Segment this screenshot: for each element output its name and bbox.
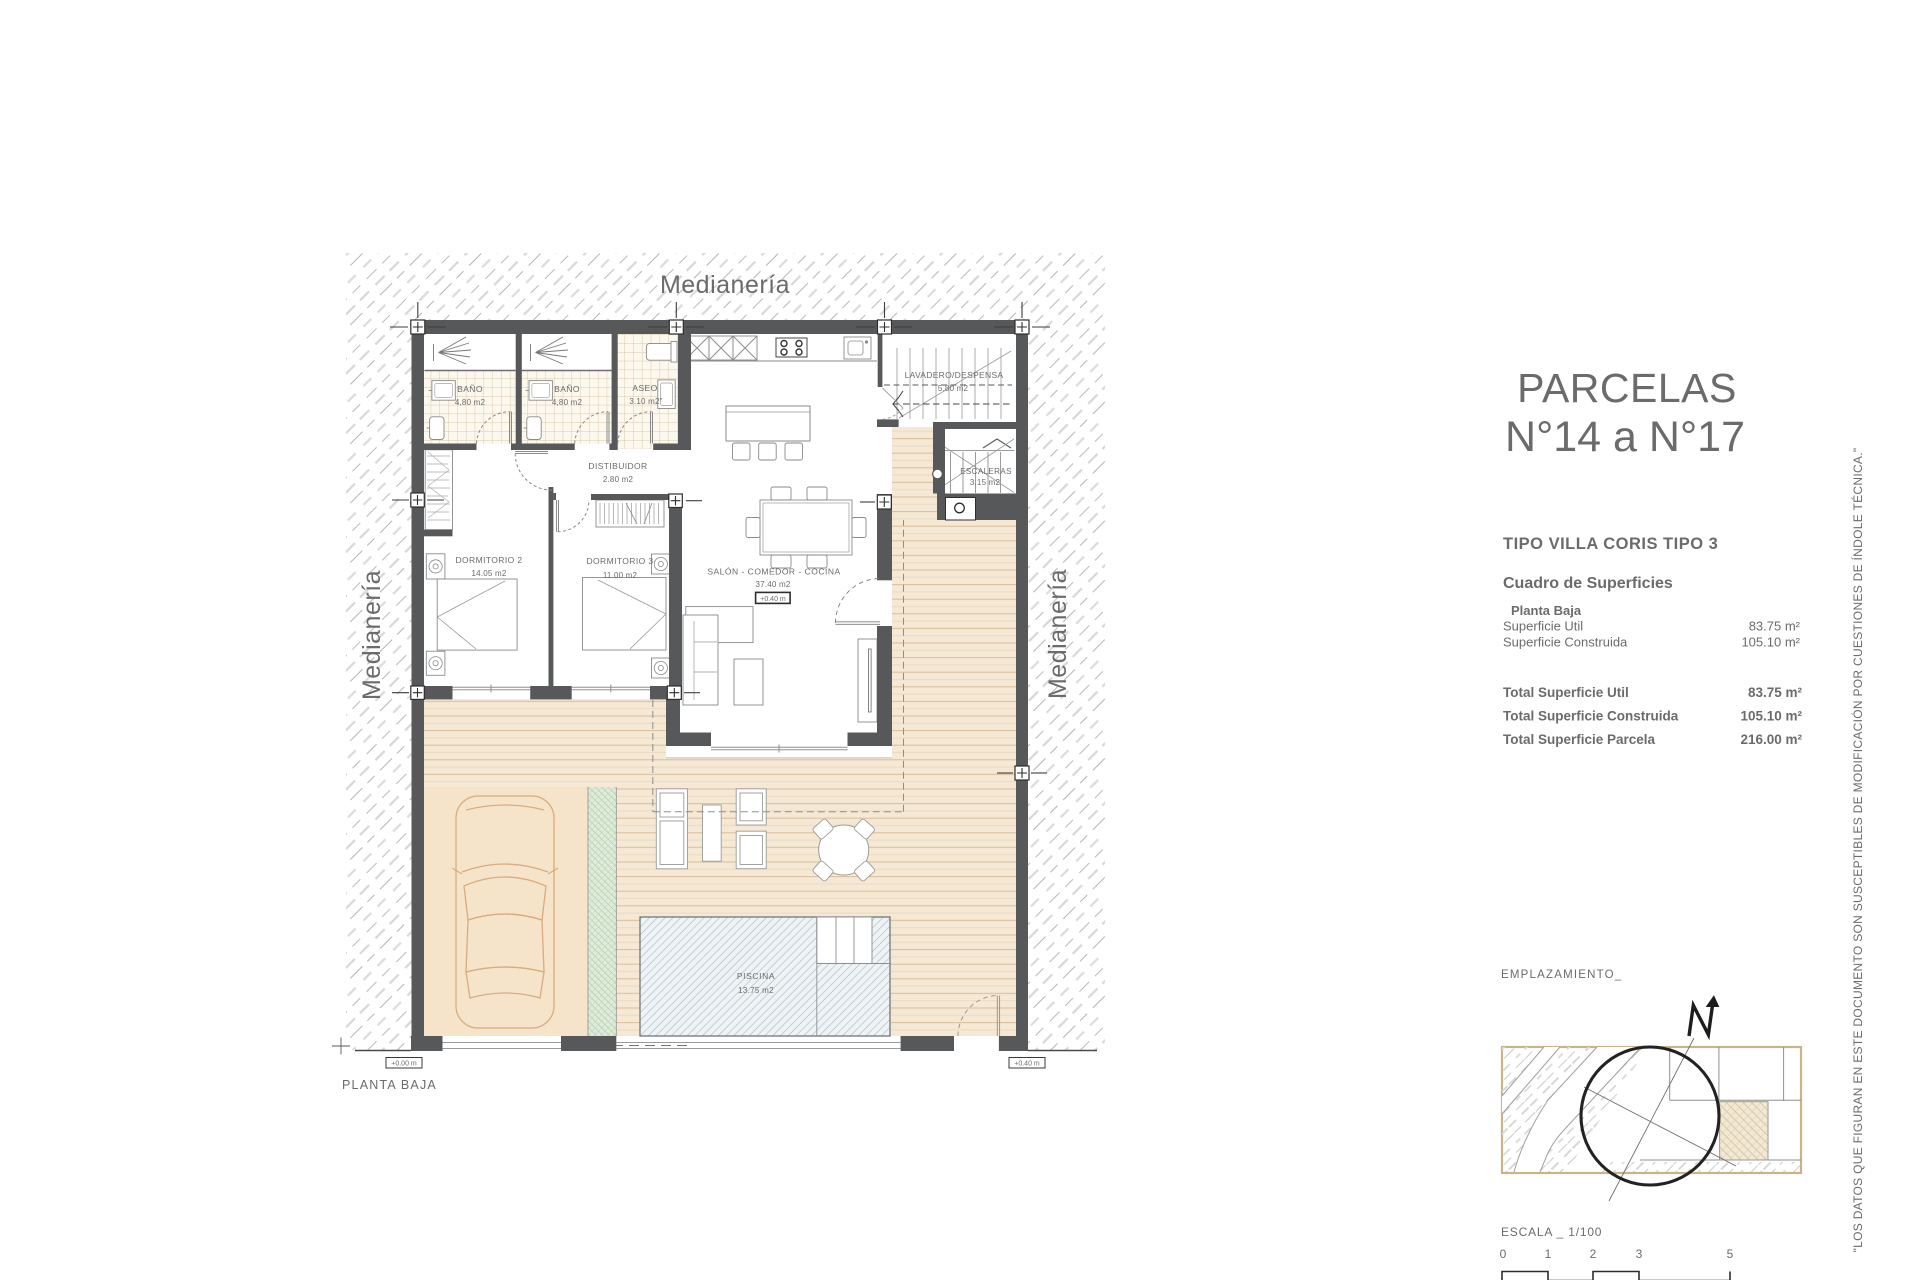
svg-text:105.10 m²: 105.10 m² — [1741, 635, 1800, 650]
svg-text:BAÑO: BAÑO — [554, 384, 580, 394]
svg-text:3.15 m2: 3.15 m2 — [970, 478, 1001, 487]
svg-text:11.00 m2: 11.00 m2 — [603, 571, 638, 580]
svg-text:37.40 m2: 37.40 m2 — [756, 580, 791, 589]
svg-text:1: 1 — [1545, 1247, 1552, 1261]
svg-text:DORMITORIO 2: DORMITORIO 2 — [456, 555, 523, 565]
svg-text:SALÓN - COMEDOR - COCINA: SALÓN - COMEDOR - COCINA — [707, 567, 840, 577]
svg-text:DISTIBUIDOR: DISTIBUIDOR — [588, 461, 647, 471]
svg-text:PLANTA BAJA: PLANTA BAJA — [342, 1078, 437, 1092]
svg-text:"LOS DATOS QUE FIGURAN EN ESTE: "LOS DATOS QUE FIGURAN EN ESTE DOCUMENTO… — [1850, 448, 1865, 1253]
svg-text:4,80 m2: 4,80 m2 — [552, 398, 583, 407]
svg-text:Medianería: Medianería — [358, 570, 386, 700]
svg-text:+0.40 m: +0.40 m — [760, 596, 786, 603]
svg-text:BAÑO: BAÑO — [457, 384, 483, 394]
svg-text:13.75 m2: 13.75 m2 — [738, 986, 774, 995]
svg-text:14.05 m2: 14.05 m2 — [472, 569, 507, 578]
svg-text:5: 5 — [1727, 1247, 1734, 1261]
svg-text:+0.40 m: +0.40 m — [1014, 1061, 1040, 1068]
svg-text:216.00 m²: 216.00 m² — [1740, 732, 1802, 747]
svg-text:ESCALERAS: ESCALERAS — [960, 467, 1012, 476]
svg-text:0: 0 — [1500, 1247, 1507, 1261]
svg-text:Medianería: Medianería — [660, 271, 790, 299]
svg-text:Cuadro de Superficies: Cuadro de Superficies — [1503, 575, 1673, 592]
svg-text:Superficie Util: Superficie Util — [1503, 619, 1583, 634]
svg-text:N°14 a N°17: N°14 a N°17 — [1505, 413, 1745, 461]
svg-text:ESCALA _ 1/100: ESCALA _ 1/100 — [1501, 1225, 1602, 1239]
svg-text:Total Superficie Util: Total Superficie Util — [1503, 685, 1629, 700]
svg-text:Planta Baja: Planta Baja — [1511, 603, 1582, 618]
svg-text:Total Superficie Parcela: Total Superficie Parcela — [1503, 732, 1656, 747]
svg-text:83.75 m²: 83.75 m² — [1749, 619, 1801, 634]
svg-text:Medianería: Medianería — [1044, 569, 1072, 699]
svg-text:ASEO: ASEO — [632, 383, 657, 393]
svg-text:TIPO VILLA CORIS TIPO 3: TIPO VILLA CORIS TIPO 3 — [1503, 535, 1718, 553]
svg-text:PISCINA: PISCINA — [737, 971, 775, 981]
svg-text:3.10 m2": 3.10 m2" — [629, 397, 662, 406]
svg-text:LAVADERO/DESPENSA: LAVADERO/DESPENSA — [905, 370, 1004, 380]
svg-text:5.80 m2: 5.80 m2 — [938, 384, 969, 393]
svg-text:83.75 m²: 83.75 m² — [1748, 685, 1803, 700]
svg-text:3: 3 — [1636, 1247, 1643, 1261]
svg-text:2: 2 — [1590, 1247, 1597, 1261]
svg-text:2.80 m2: 2.80 m2 — [603, 475, 634, 484]
svg-text:Total Superficie Construida: Total Superficie Construida — [1503, 709, 1679, 724]
svg-text:EMPLAZAMIENTO_: EMPLAZAMIENTO_ — [1501, 969, 1622, 981]
svg-text:4,80 m2: 4,80 m2 — [455, 398, 486, 407]
svg-text:Superficie Construida: Superficie Construida — [1503, 635, 1628, 650]
svg-text:105.10 m²: 105.10 m² — [1740, 709, 1802, 724]
svg-text:DORMITORIO 3: DORMITORIO 3 — [587, 556, 654, 566]
svg-text:PARCELAS: PARCELAS — [1517, 365, 1737, 411]
svg-text:+0.00 m: +0.00 m — [391, 1061, 417, 1068]
